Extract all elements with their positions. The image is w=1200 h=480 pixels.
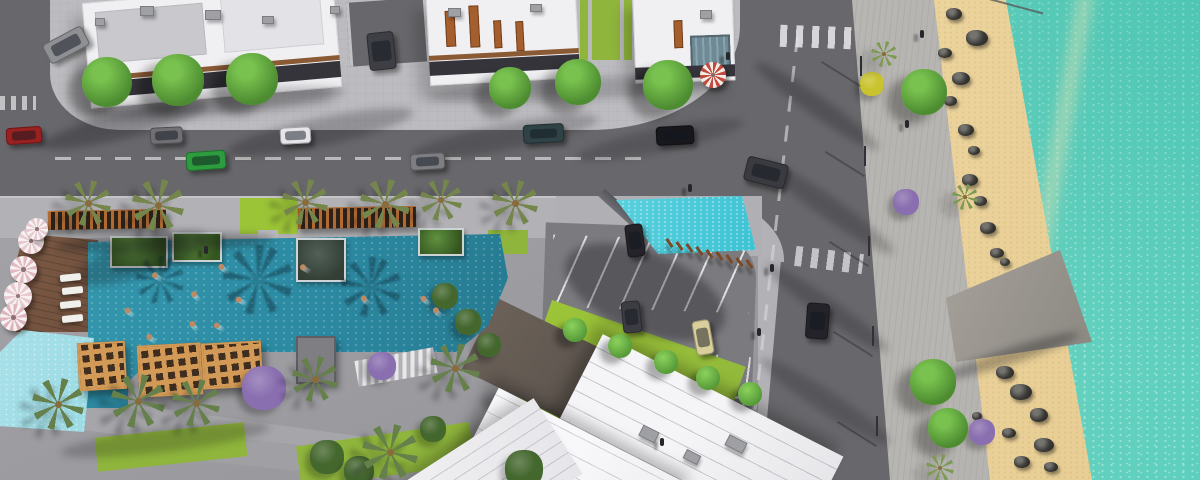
pool-planter	[110, 236, 168, 268]
car-red-parked	[5, 126, 42, 145]
side-street-north	[346, 0, 430, 67]
window-panel	[493, 20, 502, 48]
lattice-cabana	[137, 342, 204, 397]
storefront-shadow-band	[635, 64, 735, 79]
crosswalk-side-street	[0, 96, 36, 110]
window-panel	[468, 5, 480, 47]
street-light	[876, 416, 878, 436]
pergola	[298, 206, 416, 229]
pool-planter-dark	[296, 238, 346, 282]
car-green	[185, 150, 226, 172]
window-panel	[445, 11, 457, 47]
car-coast-road-suv	[805, 302, 830, 340]
pergola	[48, 209, 166, 230]
lawn-patch	[240, 198, 298, 234]
street-light	[868, 236, 870, 256]
pool-bar-structure	[296, 336, 336, 384]
crosswalk-south	[794, 246, 864, 274]
courtyard-lawn-strip	[580, 0, 632, 60]
pedestrian	[688, 184, 692, 192]
aerial-resort-beach-render	[0, 0, 1200, 480]
lattice-cabana	[77, 341, 127, 391]
window-panel	[673, 20, 683, 48]
pool-planter	[418, 228, 464, 256]
street-light	[872, 326, 874, 346]
building-block-northeast	[633, 0, 736, 84]
lattice-cabana	[201, 340, 263, 389]
roof-section	[95, 3, 207, 64]
window-panel	[515, 21, 525, 51]
roof-section	[220, 0, 325, 53]
pool-planter	[172, 232, 222, 262]
car-gray-suv	[410, 152, 446, 171]
crosswalk-north	[780, 25, 853, 49]
car-black	[656, 125, 695, 146]
boulevard-center-line	[55, 157, 655, 160]
building-block-north-center	[426, 0, 580, 86]
